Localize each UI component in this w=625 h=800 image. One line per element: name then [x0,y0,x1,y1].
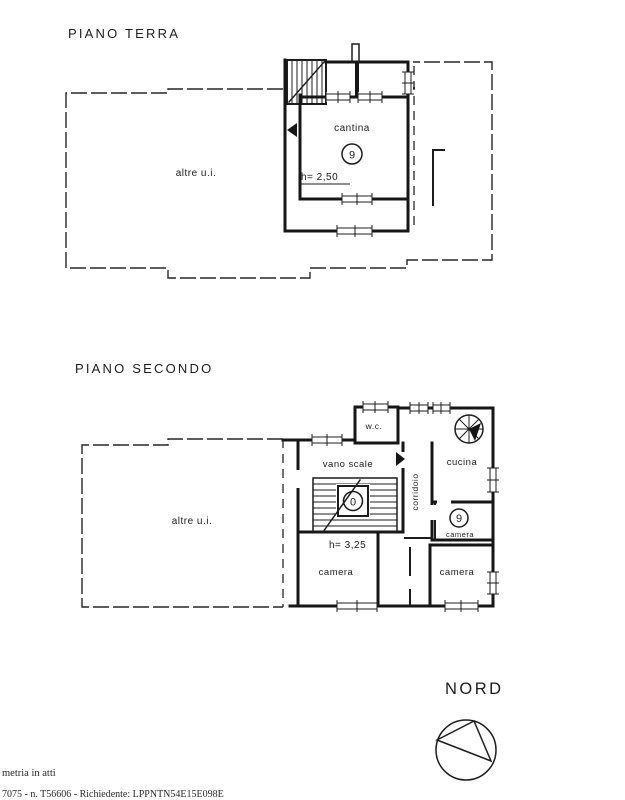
stairwell-label: vano scale [323,459,373,470]
footer-note-line1: metria in atti [2,768,56,779]
bedroom-left-label: camera [319,567,354,578]
north-compass: NORD [436,680,504,780]
footer-note-line2: 7075 - n. T56606 - Richiedente: LPPNTN54… [2,789,224,800]
north-label: NORD [445,680,504,698]
stairwell-number: 0 [350,497,356,509]
kitchen-label: cucina [447,457,478,468]
bedroom-right-label: camera [440,567,475,578]
ground-other-units-label: altre u.i. [176,168,217,179]
cantina-unit-number: 9 [349,150,355,162]
second-other-units-label: altre u.i. [172,516,213,527]
stairwell-stairs: 0 [313,478,397,532]
cantina-room-label: cantina [334,123,370,134]
north-arrow-icon [436,720,496,780]
second-height-note: h= 3,25 [329,540,366,551]
spiral-stair-icon [455,415,483,443]
ground-floor-plan: altre u.i. cantina 9 h= 2,50 [66,44,492,278]
door-arrow-icon [287,123,297,137]
ground-other-units-outline [66,62,492,278]
room9-number: 9 [456,513,462,525]
second-floor-plan: 0 [82,401,499,612]
corridor-label: corridoio [410,473,420,510]
wc-label: w.c. [365,421,383,431]
room9-label: camera [446,530,474,539]
floorplan-document-page: PIANO TERRA PIANO SECONDO [0,0,625,800]
ground-height-note: h= 2,50 [301,172,338,183]
floorplan-drawing: altre u.i. cantina 9 h= 2,50 [0,0,625,800]
